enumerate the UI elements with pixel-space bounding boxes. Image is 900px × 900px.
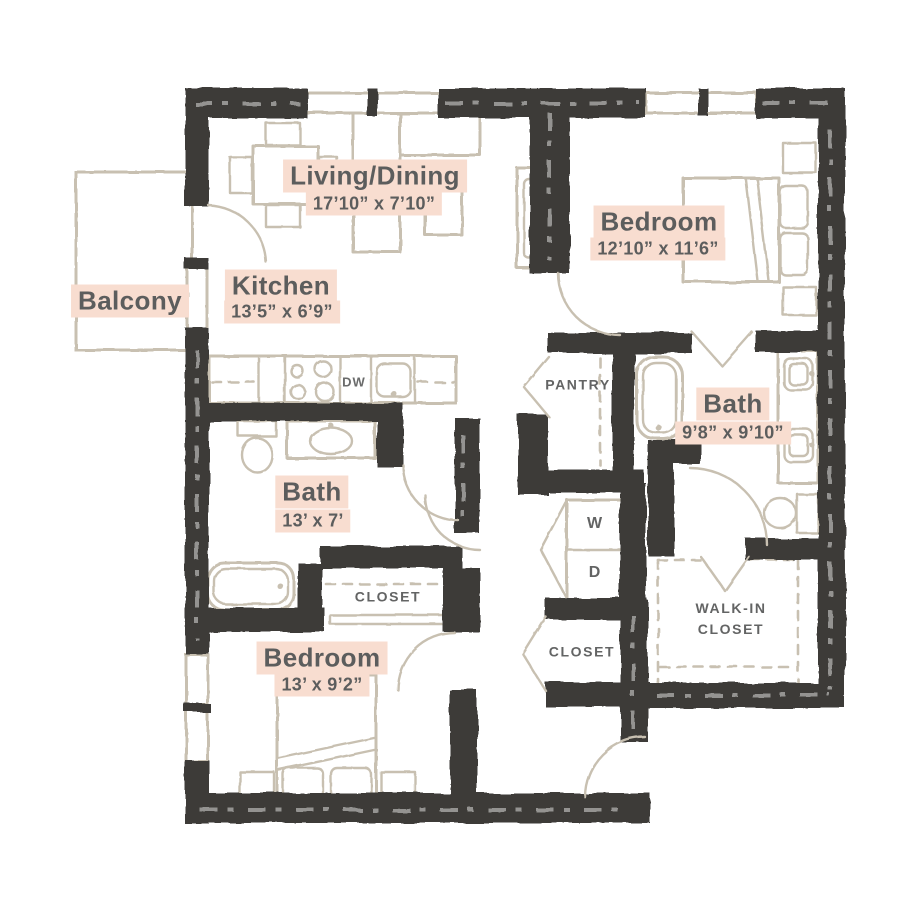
room-dims-bath-right: 9’8” x 9’10” <box>675 423 791 444</box>
room-dims-living-dining: 17’10” x 7’10” <box>306 194 442 215</box>
room-label-balcony: Balcony <box>71 286 189 317</box>
labels-layer: Living/Dining 17’10” x 7’10” Bedroom 12’… <box>0 0 900 900</box>
floor-plan-page: Living/Dining 17’10” x 7’10” Bedroom 12’… <box>0 0 900 900</box>
room-dims-kitchen: 13’5” x 6’9” <box>224 302 340 323</box>
room-dims-bath-left: 13’ x 7’ <box>275 511 350 532</box>
room-label-bath-right: Bath <box>696 389 769 420</box>
room-label-bedroom-bottom: Bedroom <box>257 643 388 674</box>
label-washer: W <box>587 515 603 533</box>
label-dryer: D <box>589 564 602 582</box>
room-label-bedroom-top: Bedroom <box>594 207 725 238</box>
room-dims-bedroom-top: 12’10” x 11’6” <box>590 239 725 260</box>
room-label-kitchen: Kitchen <box>225 271 337 302</box>
room-label-bath-left: Bath <box>275 477 348 508</box>
room-label-living-dining: Living/Dining <box>283 161 467 192</box>
room-label-walk-in-closet: WALK-IN CLOSET <box>695 598 766 640</box>
room-label-closet-bath: CLOSET <box>355 587 421 608</box>
room-dims-bedroom-bottom: 13’ x 9’2” <box>274 675 369 696</box>
room-label-closet-hall: CLOSET <box>549 642 615 663</box>
room-label-pantry: PANTRY <box>545 375 611 396</box>
label-dishwasher: DW <box>342 375 366 390</box>
